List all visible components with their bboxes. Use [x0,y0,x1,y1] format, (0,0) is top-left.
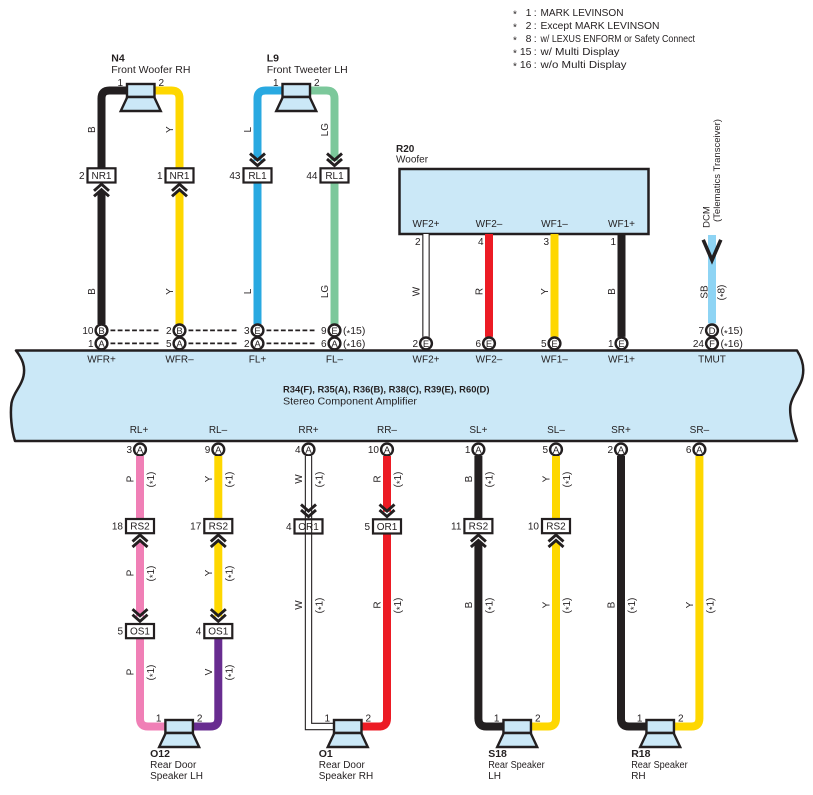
svg-text:W: W [294,474,305,484]
svg-text:*: * [513,10,517,21]
svg-text:R20: R20 [396,144,415,155]
svg-text:(*1): (*1) [315,598,327,614]
svg-text:E: E [423,339,429,350]
svg-text:SL+: SL+ [469,425,487,436]
svg-text:B: B [607,601,618,608]
svg-text:A: A [331,339,338,350]
svg-text:S18: S18 [488,748,507,760]
svg-text:Y: Y [685,601,696,608]
svg-text:1: 1 [465,445,471,456]
svg-text::: : [534,46,537,58]
svg-text:R18: R18 [631,748,650,760]
svg-text:WF1+: WF1+ [608,219,635,230]
svg-text:w/ Multi Display: w/ Multi Display [539,46,620,58]
svg-text:w/o Multi Display: w/o Multi Display [539,59,627,71]
svg-text:R: R [373,601,384,608]
svg-text:Rear Speaker: Rear Speaker [488,760,545,771]
svg-text:N4: N4 [111,53,125,65]
svg-text:(*1): (*1) [146,566,158,582]
svg-text:SL–: SL– [547,425,565,436]
svg-text:RH: RH [631,771,645,782]
svg-text:2: 2 [678,714,684,725]
svg-text:(*1): (*1) [562,472,574,488]
svg-text:OR1: OR1 [377,522,398,533]
svg-text::: : [534,20,537,32]
svg-text:5: 5 [364,522,370,533]
svg-text:RR+: RR+ [298,425,318,436]
svg-text:LG: LG [320,123,331,137]
svg-text:10: 10 [368,445,380,456]
svg-text:R34(F), R35(A), R36(B), R38(C): R34(F), R35(A), R36(B), R38(C), R39(E), … [283,384,490,395]
svg-text:A: A [215,445,222,456]
svg-text:1: 1 [610,237,616,248]
svg-text:16: 16 [520,59,532,71]
svg-text:B: B [87,288,98,295]
svg-text:E: E [486,339,492,350]
svg-text:E: E [331,326,337,337]
svg-text:1: 1 [494,714,500,725]
svg-text:OS1: OS1 [208,627,228,638]
svg-text:F: F [709,339,715,350]
svg-text:w/ LEXUS ENFORM or Safety Conn: w/ LEXUS ENFORM or Safety Connect [540,33,695,45]
svg-text:15: 15 [520,46,532,58]
svg-text:(Telematics Transceiver): (Telematics Transceiver) [712,119,723,222]
svg-text:2: 2 [366,714,372,725]
svg-text:1: 1 [637,714,643,725]
svg-text:(*1): (*1) [705,598,717,614]
svg-text:Y: Y [165,288,176,295]
svg-text:B: B [464,601,475,608]
svg-text:A: A [553,445,560,456]
svg-text:(*1): (*1) [224,566,236,582]
svg-text:SR–: SR– [690,425,710,436]
svg-text:Y: Y [165,126,176,133]
svg-text:1: 1 [324,714,330,725]
svg-text:*: * [513,36,517,47]
svg-text:2: 2 [244,339,250,350]
svg-text:E: E [551,339,557,350]
svg-text:(*1): (*1) [562,598,574,614]
svg-text:O1: O1 [319,748,333,760]
svg-text:A: A [98,339,105,350]
svg-text:5: 5 [541,339,547,350]
svg-text:2: 2 [166,326,172,337]
svg-text:1: 1 [157,171,163,182]
svg-text:3: 3 [244,326,250,337]
svg-text:2: 2 [197,714,203,725]
svg-text:9: 9 [205,445,211,456]
svg-text:B: B [98,326,104,337]
svg-text:2: 2 [535,714,541,725]
svg-text:V: V [204,668,215,675]
svg-text:Front Tweeter LH: Front Tweeter LH [267,64,348,76]
svg-text:Y: Y [204,569,215,576]
svg-text:A: A [384,445,391,456]
svg-text:1: 1 [88,339,94,350]
svg-text:RL+: RL+ [130,425,149,436]
svg-text:6: 6 [475,339,481,350]
svg-text:WF1–: WF1– [541,354,568,365]
svg-text:Y: Y [542,601,553,608]
svg-text:B: B [607,288,618,295]
svg-text:A: A [475,445,482,456]
svg-text:A: A [696,445,703,456]
svg-text:1: 1 [156,714,162,725]
svg-text:RS2: RS2 [546,522,566,533]
svg-text:7: 7 [698,326,704,337]
svg-text:1: 1 [273,78,279,89]
svg-text:5: 5 [166,339,172,350]
svg-text:Rear Door: Rear Door [319,760,366,771]
svg-text:B: B [87,126,98,133]
svg-text:(*1): (*1) [484,472,496,488]
svg-text:P: P [126,475,137,482]
svg-text::: : [534,7,537,19]
svg-text:NR1: NR1 [169,171,189,182]
svg-text:5: 5 [117,627,123,638]
svg-text:W: W [412,286,423,296]
svg-text:O12: O12 [150,748,170,760]
svg-text:DCM: DCM [701,206,712,228]
svg-text:17: 17 [190,522,202,533]
svg-text:2: 2 [607,445,613,456]
svg-text:RS2: RS2 [469,522,489,533]
svg-text:Woofer: Woofer [396,155,429,166]
svg-text:L: L [243,288,254,294]
svg-text:Rear Speaker: Rear Speaker [631,760,688,771]
svg-text:Y: Y [540,288,551,295]
svg-text:4: 4 [478,237,484,248]
svg-text:6: 6 [686,445,692,456]
svg-text:*: * [513,49,517,60]
svg-text:*: * [513,23,517,34]
svg-text:24: 24 [693,339,705,350]
svg-text:4: 4 [295,445,301,456]
svg-text:(*1): (*1) [146,472,158,488]
svg-text:R: R [373,475,384,482]
svg-text:(*1): (*1) [146,665,158,681]
svg-text:1: 1 [526,7,532,19]
svg-text:P: P [126,569,137,576]
svg-text:Stereo Component Amplifier: Stereo Component Amplifier [283,396,418,407]
svg-text:3: 3 [126,445,132,456]
svg-text:4: 4 [286,522,292,533]
svg-text:(*1): (*1) [224,472,236,488]
svg-text:44: 44 [306,171,318,182]
svg-text::: : [534,59,537,71]
svg-text:A: A [137,445,144,456]
svg-text:RL1: RL1 [325,171,344,182]
svg-text:A: A [176,339,183,350]
svg-text:L: L [243,126,254,132]
svg-text:OS1: OS1 [130,627,150,638]
svg-text:2: 2 [526,20,532,32]
svg-text:6: 6 [321,339,327,350]
svg-text:Except MARK LEVINSON: Except MARK LEVINSON [541,20,660,32]
svg-text:Speaker LH: Speaker LH [150,771,203,782]
svg-text:MARK LEVINSON: MARK LEVINSON [541,7,624,19]
svg-text:A: A [254,339,261,350]
svg-text:1: 1 [117,78,123,89]
svg-text:B: B [464,475,475,482]
svg-text:L9: L9 [267,53,279,65]
svg-text:WFR+: WFR+ [87,354,116,365]
svg-text:WF2+: WF2+ [413,354,440,365]
svg-text:Y: Y [204,475,215,482]
svg-text:9: 9 [321,326,327,337]
svg-text:A: A [305,445,312,456]
svg-text:WF2–: WF2– [476,219,503,230]
svg-text:B: B [176,326,182,337]
svg-text:10: 10 [528,522,540,533]
svg-text:LH: LH [488,771,501,782]
svg-text:RR–: RR– [377,425,397,436]
svg-text:LG: LG [320,285,331,299]
svg-text:2: 2 [159,78,165,89]
svg-text:WF2+: WF2+ [413,219,440,230]
svg-text:TMUT: TMUT [698,354,726,365]
svg-text:E: E [254,326,260,337]
svg-text:3: 3 [543,237,549,248]
svg-text:RS2: RS2 [130,522,150,533]
svg-text:(*1): (*1) [393,598,405,614]
svg-text:18: 18 [112,522,124,533]
svg-text:R: R [475,288,486,295]
svg-text:RS2: RS2 [209,522,229,533]
svg-text:NR1: NR1 [91,171,111,182]
svg-text:E: E [618,339,624,350]
svg-text:WFR–: WFR– [165,354,194,365]
svg-text:RL–: RL– [209,425,228,436]
svg-text:2: 2 [314,78,320,89]
svg-text:P: P [126,668,137,675]
svg-text:WF1–: WF1– [541,219,568,230]
svg-text:8: 8 [526,33,532,45]
svg-text:WF1+: WF1+ [608,354,635,365]
svg-text:(*1): (*1) [315,472,327,488]
svg-text::: : [534,33,537,45]
svg-text:WF2–: WF2– [476,354,503,365]
svg-text:2: 2 [412,339,418,350]
svg-text:(*1): (*1) [627,598,639,614]
svg-text:*: * [513,62,517,73]
svg-text:D: D [709,326,716,337]
svg-text:43: 43 [229,171,241,182]
svg-text:FL+: FL+ [249,354,267,365]
svg-text:W: W [294,600,305,610]
svg-text:RL1: RL1 [248,171,267,182]
svg-text:2: 2 [415,237,421,248]
svg-text:4: 4 [196,627,202,638]
svg-text:A: A [618,445,625,456]
svg-text:OR1: OR1 [298,522,319,533]
svg-text:(*1): (*1) [393,472,405,488]
svg-text:(*1): (*1) [224,665,236,681]
svg-text:11: 11 [451,522,462,533]
svg-text:10: 10 [82,326,94,337]
svg-text:SB: SB [699,285,710,299]
svg-text:FL–: FL– [326,354,344,365]
svg-text:Speaker RH: Speaker RH [319,771,373,782]
svg-text:SR+: SR+ [611,425,631,436]
svg-text:2: 2 [79,171,85,182]
svg-text:Rear Door: Rear Door [150,760,197,771]
svg-text:Front Woofer RH: Front Woofer RH [111,64,190,76]
svg-text:5: 5 [542,445,548,456]
svg-text:(*1): (*1) [484,598,496,614]
svg-text:(*8): (*8) [716,285,728,301]
svg-text:Y: Y [542,475,553,482]
svg-text:1: 1 [608,339,614,350]
